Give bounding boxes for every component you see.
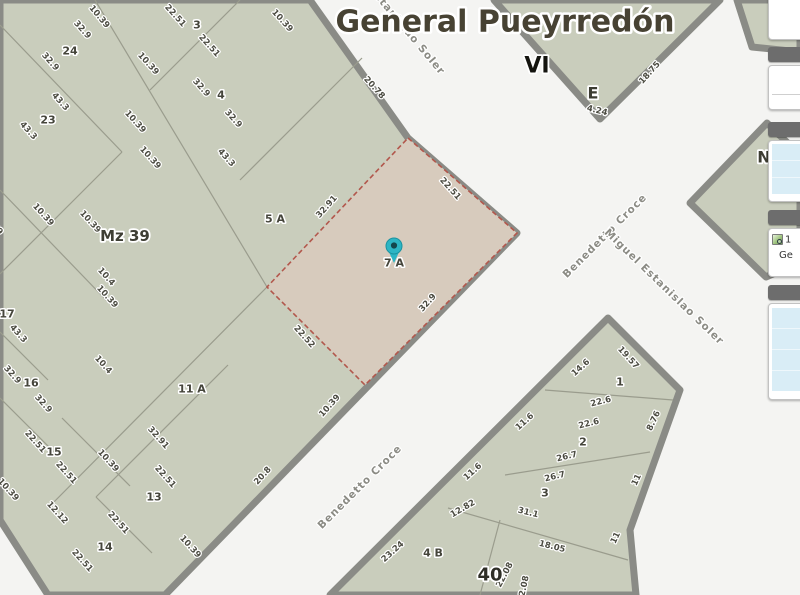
parcel-number-label: 3: [193, 19, 201, 32]
panel-section-header[interactable]: [768, 210, 800, 225]
parcel-number-label: 14: [97, 541, 113, 554]
layer-row[interactable]: [772, 161, 800, 178]
street-name-label: Benedetto Croce: [316, 443, 405, 532]
zone-label: E: [588, 84, 599, 103]
result-text-line2: Ge: [779, 250, 793, 261]
parcel-number-label: 15: [46, 446, 61, 459]
panel-card-results: 1 Ge: [768, 228, 800, 277]
parcel-number-label: 5 A: [265, 213, 285, 226]
parcel-number-label: 23: [40, 114, 55, 127]
panel-card-top: [768, 0, 800, 40]
marker-dot: [391, 242, 397, 248]
list-row[interactable]: [772, 371, 800, 391]
divider: [772, 94, 800, 95]
parcel-number-label: 2: [579, 436, 587, 449]
result-text-line1: 1: [785, 235, 791, 246]
list-row[interactable]: [772, 329, 800, 350]
magnifier-icon: [777, 239, 782, 244]
block-number-label: Mz 39: [100, 227, 150, 245]
panel-card-list: [768, 303, 800, 400]
layer-row[interactable]: [772, 178, 800, 194]
parcel-number-label: 11 A: [178, 383, 206, 396]
map-title: General Pueyrredón: [335, 5, 674, 40]
parcel-number-label: 4: [217, 89, 225, 102]
parcel-number-label: 24: [62, 45, 78, 58]
panel-section-header[interactable]: [768, 285, 800, 300]
list-row[interactable]: [772, 350, 800, 371]
parcel-number-label: 13: [146, 491, 161, 504]
panel-section-header[interactable]: [768, 122, 800, 137]
parcel-number-label: 4 B: [423, 547, 443, 560]
zone-label: VI: [524, 54, 549, 79]
parcel-number-label: 17: [0, 308, 15, 321]
locate-result-icon: [772, 234, 783, 245]
panel-card-search: [768, 65, 800, 110]
parcel-number-label: 1: [616, 376, 624, 389]
list-row[interactable]: [772, 308, 800, 329]
parcel-number-label: 3: [541, 487, 549, 500]
panel-section-header[interactable]: [768, 47, 800, 62]
parcel-number-label: 16: [23, 377, 39, 390]
map-canvas[interactable]: 10.3932.922.5110.3922.5132.910.3932.943.…: [0, 0, 800, 595]
map-viewer: 10.3932.922.5110.3922.5132.910.3932.943.…: [0, 0, 800, 595]
layer-row[interactable]: [772, 144, 800, 161]
side-panel: 1 Ge: [768, 0, 800, 595]
block-number-label: 40: [477, 565, 502, 586]
panel-card-layers: [768, 140, 800, 202]
